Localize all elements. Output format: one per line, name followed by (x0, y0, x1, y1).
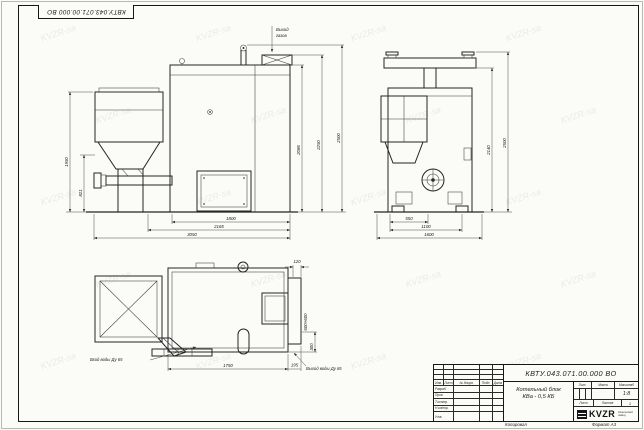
boiler-door-front (197, 171, 251, 211)
dims-heights: 2086 2250 2500 (247, 45, 346, 212)
col-doc: № докум. (454, 380, 480, 385)
dim-elev-h-total: 2500 (336, 133, 341, 144)
sheet-footer-labels: Копировал Формат А3 (0, 422, 644, 429)
dim-side-w3: 1600 (424, 232, 434, 237)
dim-front-w-body: 1800 (226, 216, 236, 221)
gas-outlet-label-1: Выход (276, 27, 289, 32)
dim-front-w-total: 3050 (187, 232, 197, 237)
dim-side-w2: 1100 (421, 224, 431, 229)
dim-side-w1: 550 (405, 216, 413, 221)
dim-elev-h-body: 2086 (296, 145, 301, 156)
feed-chute-plan (152, 338, 212, 356)
title-block-product-name: Котельный блок КВа - 0,5 КБ (504, 382, 574, 421)
header-lit: Лит. (574, 382, 592, 388)
dim-side-h-duct: 2140 (486, 145, 491, 156)
product-name-line1: Котельный блок (504, 387, 573, 394)
view-front: Выход газов 1950 821 1800 2165 3050 (64, 26, 346, 240)
sheet-label: Лист (574, 400, 594, 406)
top-duct (384, 52, 476, 88)
product-name-line2: КВа - 0,5 КБ (504, 394, 573, 401)
water-inlet-label: Вход воды Ду 65 (90, 357, 123, 362)
dim-plan-offset-top: 120 (293, 259, 301, 264)
lit-cells (574, 389, 592, 399)
fuel-hopper-plan (95, 276, 162, 342)
support-pad-right (456, 206, 468, 212)
mass-value (592, 389, 615, 399)
view-plan: Вход воды Ду 65 Выход воды Ду 65 120 600… (90, 259, 342, 371)
top-pad-plan (196, 263, 214, 268)
water-outlet-label: Выход воды Ду 65 (306, 366, 342, 371)
scale-value: 1:8 (615, 389, 638, 399)
role-approver: Утв. (434, 412, 454, 421)
company-logo: KVZR Козельский завод (574, 407, 638, 421)
title-block-revision-table: Изм. Лист № докум. Подп. Дата Разраб. Пр… (434, 365, 504, 421)
dim-plan-opening: 600×600 (303, 313, 308, 331)
dim-plan-w-door: 195 (291, 363, 299, 368)
kvzr-logo-text: KVZR (589, 409, 615, 419)
auger-feeder (94, 169, 172, 188)
boiler-body-side (388, 88, 472, 212)
dim-front-height: 1950 (64, 157, 69, 167)
role-checker: Пров. (434, 393, 454, 399)
role-tcontrol: Т.контр. (434, 399, 454, 405)
dim-elev-h-duct: 2250 (316, 140, 321, 151)
outlet-pipe-plan (238, 329, 249, 354)
col-izm: Изм. (434, 380, 444, 385)
header-scale: Масштаб (615, 382, 638, 388)
ash-door (396, 192, 412, 204)
sensor-pocket (464, 148, 471, 160)
col-sign: Подп. (480, 380, 493, 385)
col-date: Дата (493, 380, 503, 385)
boiler-body-front (170, 65, 290, 212)
header-mass: Масса (592, 382, 615, 388)
boiler-body-plan (168, 268, 288, 352)
sheets-label: Листов (594, 400, 622, 406)
dim-plan-offset-right: 300 (309, 343, 314, 351)
role-developer: Разраб. (434, 386, 454, 392)
fuel-hopper-front (95, 88, 163, 212)
view-side: 550 1100 1600 2140 2500 (374, 52, 512, 240)
dim-side-h-total: 2500 (502, 138, 507, 149)
service-door (448, 192, 462, 204)
support-pad-left (392, 206, 404, 212)
lifting-lug (180, 59, 185, 64)
dim-front-feed-height: 821 (78, 189, 83, 197)
kvzr-logo-icon (577, 410, 587, 419)
valve-stub (241, 45, 247, 65)
gas-duct (262, 55, 292, 65)
copied-label: Копировал (505, 422, 527, 427)
dim-front-w-mid: 2165 (213, 224, 224, 229)
format-label: Формат А3 (592, 422, 616, 427)
sheets-count: 1 (622, 400, 638, 406)
chimney-plan (238, 262, 248, 272)
gas-outlet-label-2: газов (276, 33, 287, 38)
role-ncontrol: Н.контр. (434, 406, 454, 412)
col-list: Лист (444, 380, 454, 385)
rear-door-plan (288, 278, 301, 344)
title-block: Изм. Лист № докум. Подп. Дата Разраб. Пр… (433, 364, 639, 422)
kvzr-logo-caption: Козельский завод (617, 411, 633, 417)
dims-front: 1950 821 1800 2165 3050 (64, 92, 290, 240)
burner-fan (422, 169, 444, 191)
title-block-doc-number: КВТУ.043.071.00.000 ВО (504, 365, 638, 382)
dim-plan-w-main: 1750 (223, 363, 233, 368)
